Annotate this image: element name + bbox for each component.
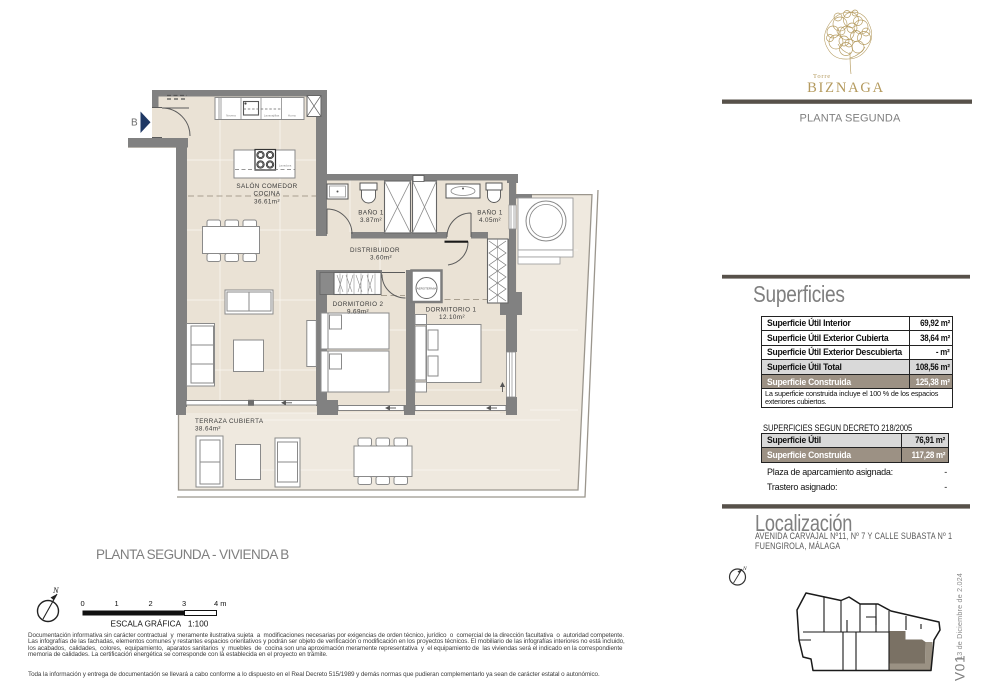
- svg-text:3: 3: [182, 599, 186, 608]
- svg-text:B: B: [131, 118, 138, 129]
- svg-text:12.10m²: 12.10m²: [439, 314, 465, 321]
- svg-text:SALÓN COMEDOR: SALÓN COMEDOR: [236, 181, 297, 190]
- svg-text:DORMITORIO 1: DORMITORIO 1: [426, 307, 477, 314]
- svg-text:N: N: [52, 585, 60, 595]
- svg-text:BIZNAGA: BIZNAGA: [807, 80, 885, 96]
- svg-text:38.64m²: 38.64m²: [195, 426, 221, 433]
- svg-text:0: 0: [81, 599, 85, 608]
- svg-text:4.05m²: 4.05m²: [479, 217, 501, 224]
- svg-text:Lavadora: Lavadora: [279, 164, 292, 168]
- svg-text:PLANTA SEGUNDA - VIVIENDA B: PLANTA SEGUNDA - VIVIENDA B: [96, 547, 289, 562]
- svg-text:TERRAZA CUBIERTA: TERRAZA CUBIERTA: [195, 418, 264, 425]
- svg-text:DISTRIBUIDOR: DISTRIBUIDOR: [350, 247, 400, 254]
- svg-text:Horno: Horno: [288, 114, 297, 118]
- svg-text:9.69m²: 9.69m²: [347, 309, 369, 316]
- svg-text:Torre: Torre: [813, 73, 831, 80]
- svg-text:3.87m²: 3.87m²: [360, 217, 382, 224]
- svg-text:13 de Diciembre de 2.024: 13 de Diciembre de 2.024: [955, 573, 964, 660]
- svg-text:DORMITORIO 2: DORMITORIO 2: [333, 301, 384, 308]
- svg-text:N: N: [742, 566, 747, 572]
- svg-text:1: 1: [115, 599, 119, 608]
- svg-text:BAÑO 1: BAÑO 1: [358, 208, 384, 217]
- svg-text:3.60m²: 3.60m²: [370, 255, 392, 262]
- svg-text:36.61m²: 36.61m²: [254, 199, 280, 206]
- svg-text:Lavavajillas: Lavavajillas: [264, 114, 280, 118]
- svg-text:2: 2: [149, 599, 153, 608]
- svg-text:ESCALA GRÁFICA 1:100: ESCALA GRÁFICA 1:100: [111, 619, 209, 629]
- svg-text:V01: V01: [953, 655, 968, 681]
- svg-text:AEROTERMIA: AEROTERMIA: [417, 287, 437, 291]
- svg-text:Nevera: Nevera: [226, 114, 236, 118]
- svg-text:4 m: 4 m: [214, 599, 227, 608]
- svg-text:COCINA: COCINA: [254, 191, 281, 198]
- svg-text:BAÑO 1: BAÑO 1: [477, 208, 503, 217]
- svg-text:PLANTA SEGUNDA: PLANTA SEGUNDA: [800, 112, 901, 124]
